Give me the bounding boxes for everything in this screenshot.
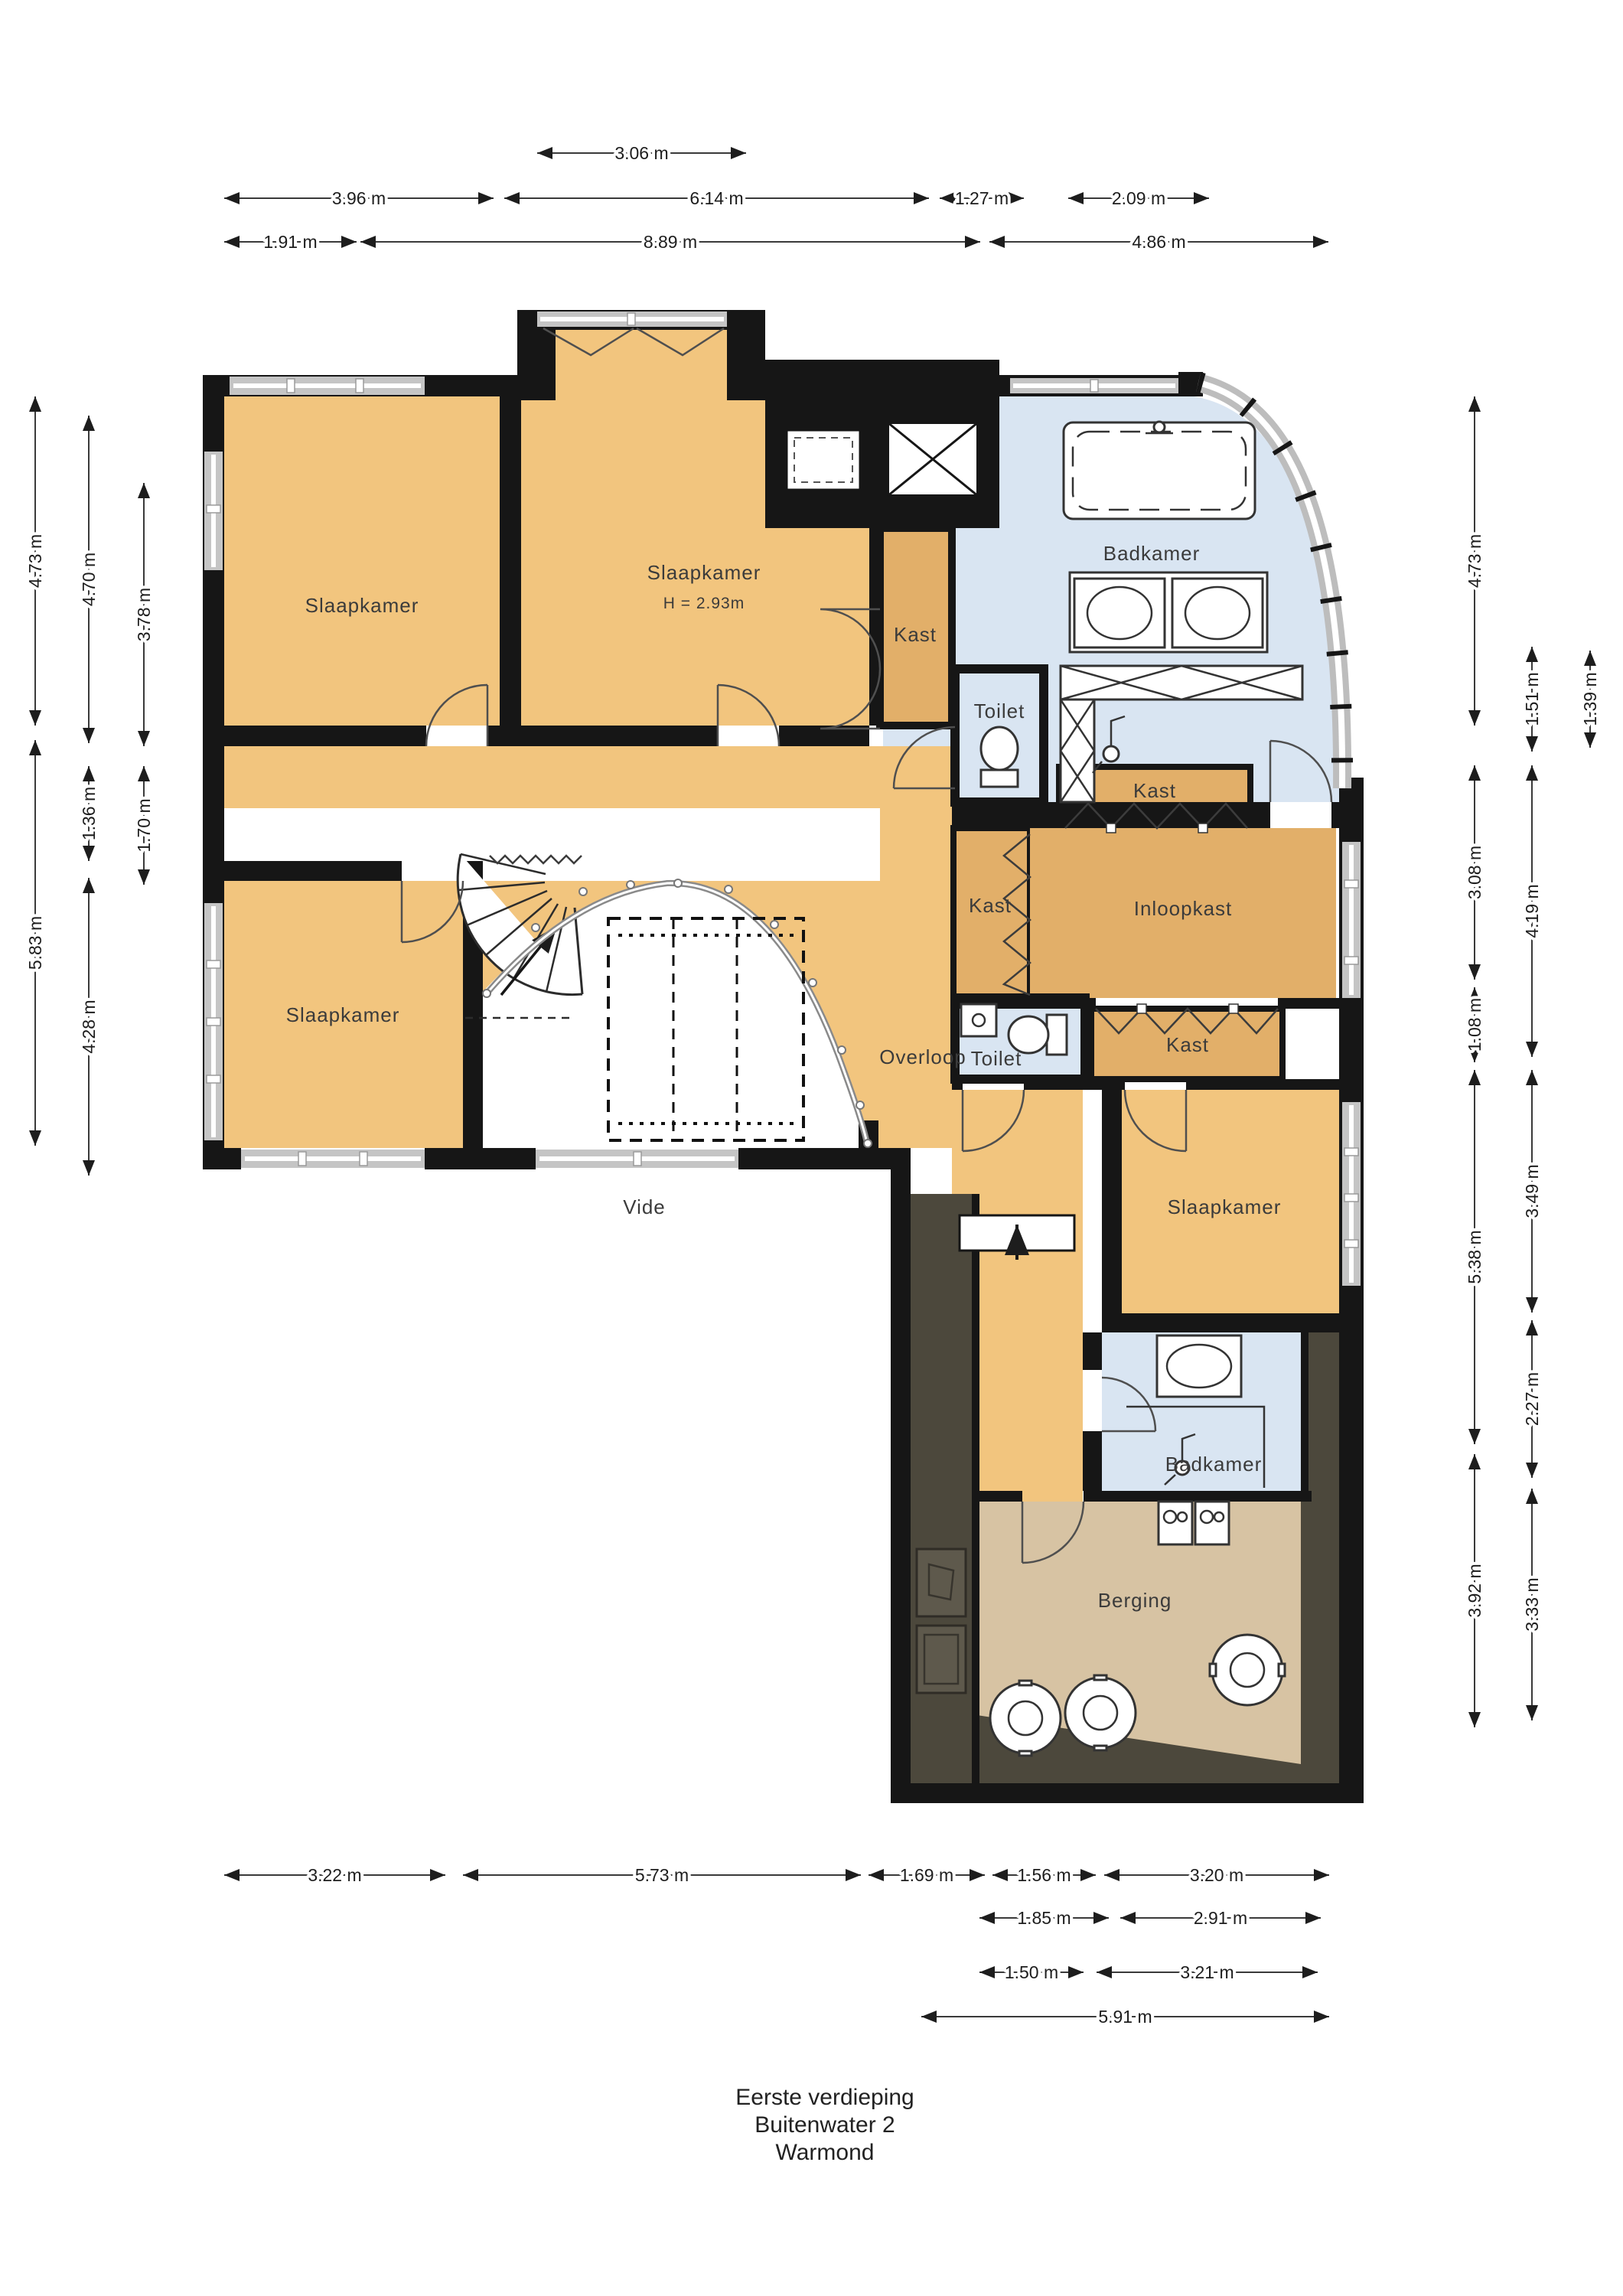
room-label-slaapkamer-w: Slaapkamer (286, 1003, 400, 1026)
overloop-column (880, 808, 952, 1148)
dimension: 4.73 m (25, 396, 45, 726)
dimension-label: 5.73 m (635, 1865, 689, 1885)
dimension-label: 4.73 m (1465, 534, 1484, 588)
toilet-n-icon (981, 727, 1018, 787)
dimension-label: 3.06 m (614, 143, 668, 163)
dimension: 3.22 m (224, 1865, 445, 1885)
dimension: 3.20 m (1104, 1865, 1329, 1885)
dimension-label: 1.85 m (1017, 1908, 1071, 1928)
dimension-label: 6.14 m (689, 188, 743, 208)
dimension: 5.91 m (921, 2007, 1329, 2027)
dimension-label: 3.20 m (1190, 1865, 1243, 1885)
room-label-toilet-n: Toilet (974, 700, 1025, 722)
room-slaapkamer-nw (224, 396, 500, 726)
window-right-inloopkast (1342, 842, 1361, 998)
title-address: Buitenwater 2 (754, 2112, 895, 2138)
roof-strip-left (911, 1194, 972, 1783)
dimension: 2.91 m (1120, 1908, 1321, 1928)
dimension-label: 4.73 m (25, 534, 45, 588)
dimension-label: 3.92 m (1465, 1564, 1484, 1617)
dimension-label: 2.27 m (1522, 1372, 1542, 1426)
room-label-overloop: Overloop (879, 1045, 966, 1068)
dimension: 1.50 m (979, 1962, 1084, 1982)
dimension: 3.33 m (1522, 1489, 1542, 1720)
window-left-nw (204, 452, 223, 570)
dimension: 6.14 m (504, 188, 929, 208)
dimension-label: 3.21 m (1180, 1962, 1234, 1982)
dimension-label: 5.83 m (25, 916, 45, 970)
room-label-slaapkamer-nw: Slaapkamer (305, 594, 419, 617)
dimension: 1.56 m (992, 1865, 1096, 1885)
bathtub-n-icon (1064, 422, 1255, 519)
dimension-label: 1.08 m (1465, 998, 1484, 1052)
dimension: 3.21 m (1097, 1962, 1318, 1982)
room-label-berging: Berging (1098, 1589, 1172, 1612)
dimension-label: 5.38 m (1465, 1230, 1484, 1283)
bay-interior (556, 330, 727, 400)
title-block: Eerste verdieping Buitenwater 2 Warmond (735, 2085, 914, 2165)
dimension-label: 4.28 m (79, 1000, 99, 1053)
dimension-label: 5.91 m (1098, 2007, 1152, 2027)
dimension: 2.27 m (1522, 1320, 1542, 1478)
window-bottom-w (241, 1150, 425, 1168)
hall-strip (224, 746, 952, 808)
dimension: 5.73 m (463, 1865, 861, 1885)
dimension: 4.73 m (1465, 396, 1484, 726)
dimension-label: 1.69 m (900, 1865, 953, 1885)
dimension-label: 3.49 m (1522, 1164, 1542, 1218)
dimension: 1.85 m (979, 1908, 1109, 1928)
room-label-kast-top: Kast (1133, 779, 1176, 802)
dimension: 4.86 m (989, 232, 1328, 252)
window-top-badkamer (1010, 378, 1178, 393)
dimension-label: 1.27 m (955, 188, 1009, 208)
room-label-toilet-m: Toilet (971, 1047, 1022, 1070)
dimension: 8.89 m (360, 232, 980, 252)
room-label-vide: Vide (623, 1195, 666, 1218)
room-label-kast-left: Kast (969, 894, 1012, 917)
window-top-nw (230, 377, 425, 395)
dimension-label: 3.22 m (308, 1865, 361, 1885)
dimension-label: 1.51 m (1522, 672, 1542, 726)
room-label-kast-bottom: Kast (1166, 1033, 1209, 1056)
dimension: 1.70 m (134, 766, 154, 885)
dimension: 1.08 m (1465, 987, 1484, 1062)
title-floor: Eerste verdieping (735, 2085, 914, 2110)
dimension-label: 3.96 m (332, 188, 386, 208)
dimension: 5.38 m (1465, 1070, 1484, 1444)
dimension: 3.06 m (537, 143, 746, 163)
room-label-inloopkast: Inloopkast (1134, 897, 1233, 920)
dimension-label: 4.70 m (79, 553, 99, 606)
dimension: 4.19 m (1522, 765, 1542, 1057)
dimension: 3.49 m (1522, 1070, 1542, 1313)
dimension-label: 1.50 m (1005, 1962, 1058, 1982)
dimension-label: 1.56 m (1017, 1865, 1071, 1885)
window-bottom-vide (536, 1150, 738, 1168)
floor-plan-page: SlaapkamerSlaapkamerH = 2.93mSlaapkamerB… (0, 0, 1623, 2296)
dimension-label: 8.89 m (644, 232, 697, 252)
dimension: 1.27 m (940, 188, 1024, 208)
dimension: 2.09 m (1068, 188, 1209, 208)
window-right-slaapkamer-se (1342, 1102, 1361, 1286)
floor-plan-drawing: SlaapkamerSlaapkamerH = 2.93mSlaapkamerB… (0, 0, 1623, 2296)
room-label-kast-bedroom: Kast (894, 623, 937, 646)
dimension-label: 1.36 m (79, 787, 99, 840)
dimension: 4.28 m (79, 878, 99, 1176)
room-label-slaapkamer-n: Slaapkamer (647, 561, 761, 584)
title-city: Warmond (776, 2140, 875, 2165)
room-label-badkamer-n: Badkamer (1103, 542, 1201, 565)
dimension: 1.36 m (79, 766, 99, 861)
dimension-label: 1.91 m (263, 232, 317, 252)
dimension: 3.96 m (224, 188, 494, 208)
dimension: 1.51 m (1522, 647, 1542, 752)
dimension: 1.39 m (1580, 651, 1600, 748)
dimension: 3.92 m (1465, 1454, 1484, 1727)
dimension: 5.83 m (25, 740, 45, 1146)
bathtub-s-icon (1157, 1336, 1241, 1397)
elevator-icon (888, 422, 978, 496)
dimension-label: 3.33 m (1522, 1577, 1542, 1631)
double-sink-icon (1070, 572, 1267, 652)
dimension-label: 2.09 m (1112, 188, 1165, 208)
window-left-w (204, 903, 223, 1140)
room-label-badkamer-s: Badkamer (1165, 1453, 1263, 1476)
dimension: 1.91 m (224, 232, 357, 252)
room-label-slaapkamer-se: Slaapkamer (1168, 1195, 1282, 1218)
dimension-label: 3.08 m (1465, 846, 1484, 899)
dimension-label: 3.78 m (134, 588, 154, 641)
dimension: 3.78 m (134, 483, 154, 746)
dimension: 4.70 m (79, 416, 99, 743)
dimension: 1.69 m (869, 1865, 985, 1885)
dimension: 3.08 m (1465, 765, 1484, 980)
dimension-label: 4.86 m (1132, 232, 1185, 252)
dimension-label: 4.19 m (1522, 884, 1542, 938)
dimension-label: 2.91 m (1194, 1908, 1247, 1928)
dimension-label: 1.70 m (134, 798, 154, 852)
dimension-label: 1.39 m (1580, 672, 1600, 726)
room-label-slaapkamer-n-height: H = 2.93m (663, 595, 745, 612)
